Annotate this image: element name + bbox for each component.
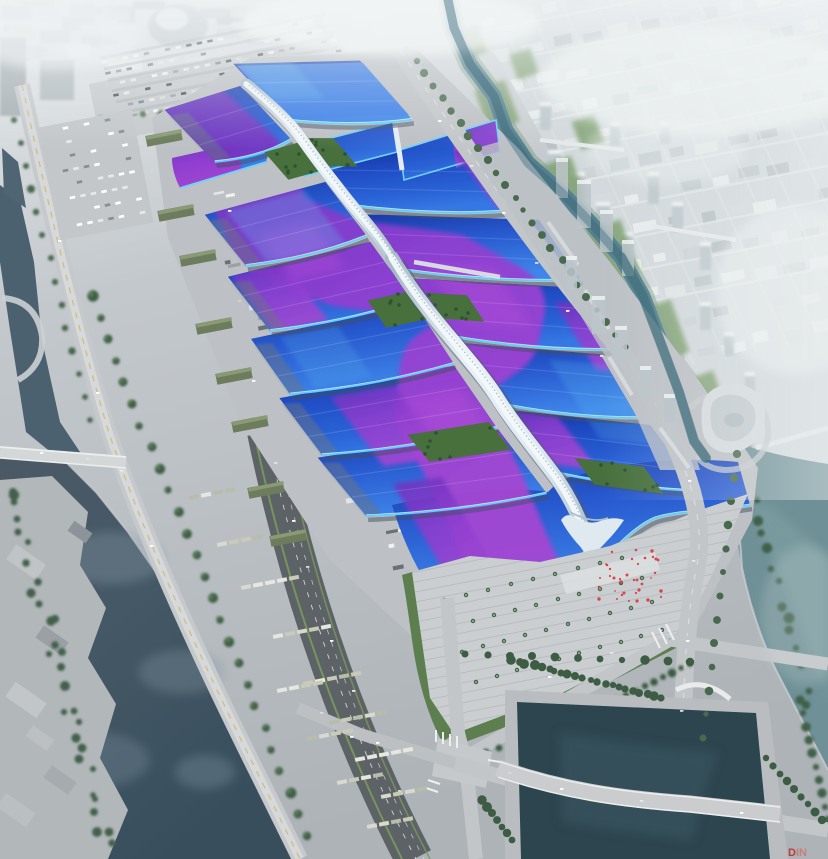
svg-text:DIN: DIN: [788, 847, 807, 859]
